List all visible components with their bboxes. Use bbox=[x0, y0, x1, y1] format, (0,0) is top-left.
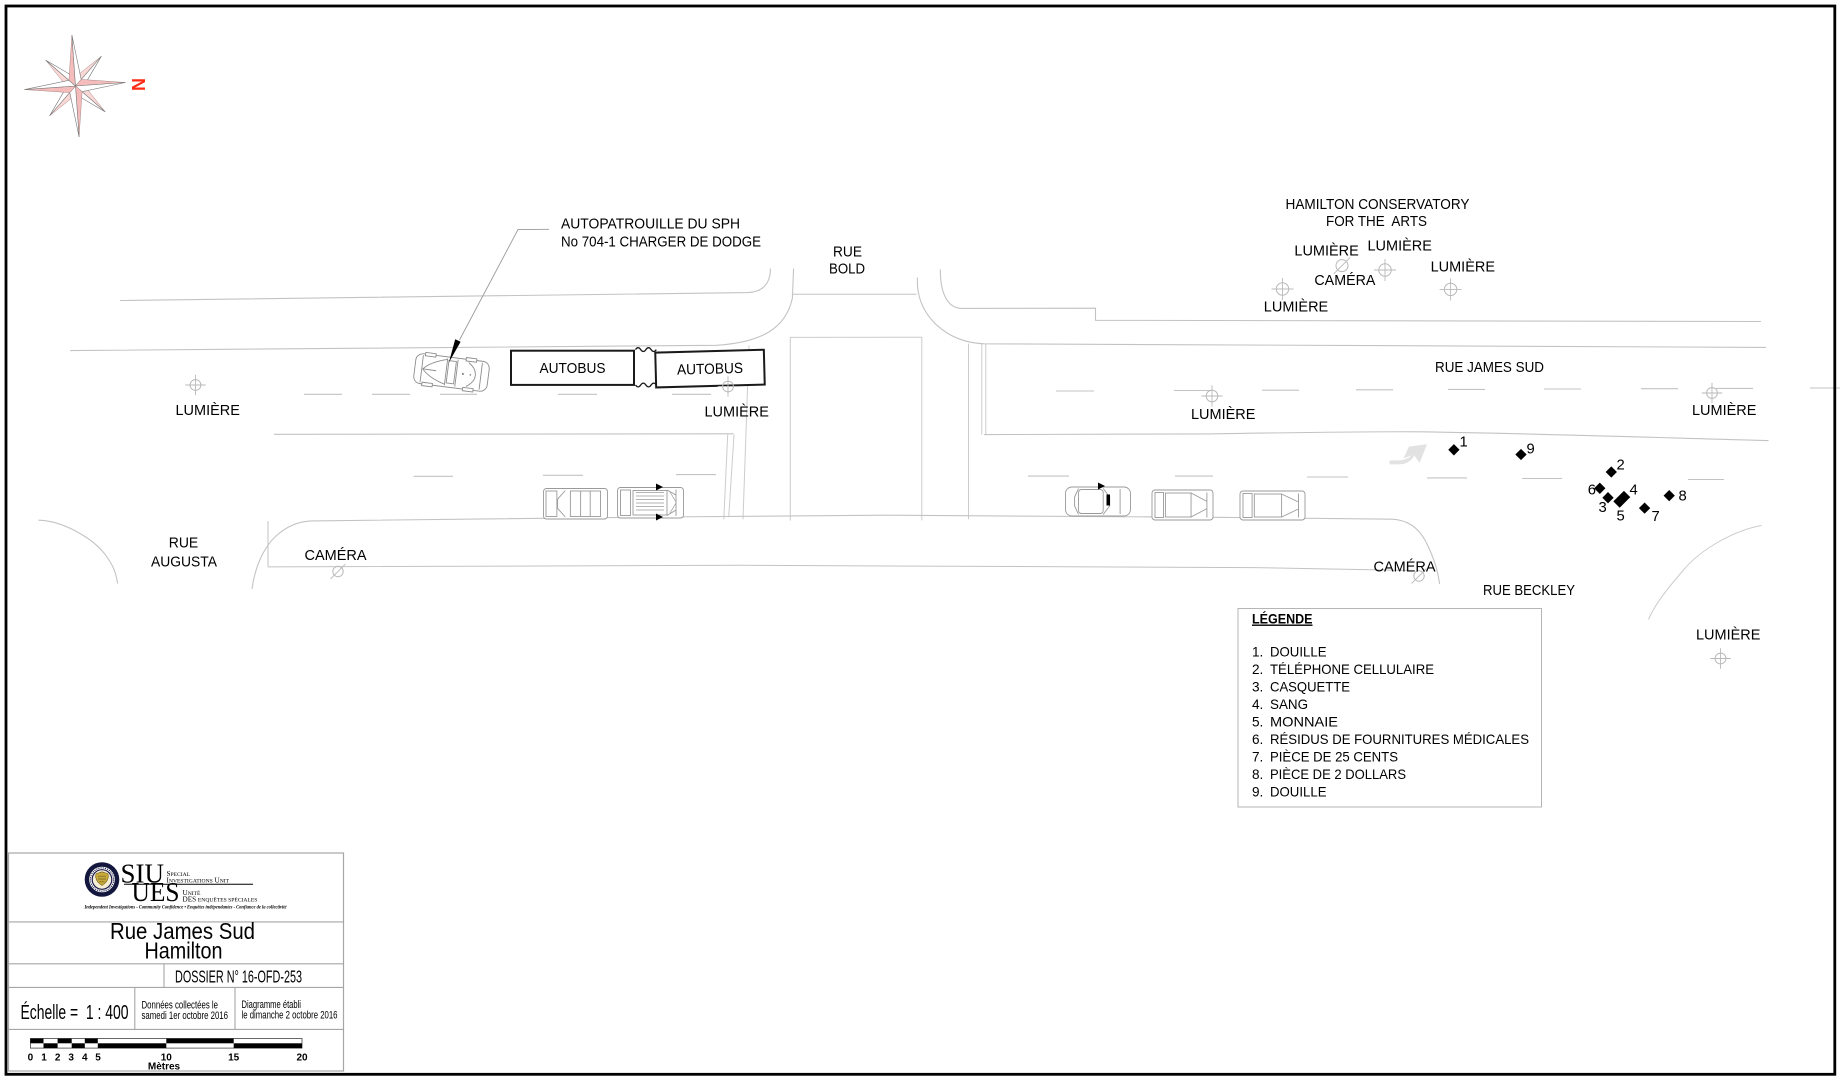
svg-text:FOR THE ARTS: FOR THE ARTS bbox=[1326, 214, 1427, 230]
svg-text:1: 1 bbox=[41, 1053, 47, 1064]
svg-text:LUMIÈRE: LUMIÈRE bbox=[1696, 627, 1761, 644]
svg-text:DOUILLE: DOUILLE bbox=[1270, 785, 1327, 800]
svg-text:LUMIÈRE: LUMIÈRE bbox=[176, 402, 241, 419]
svg-text:LUMIÈRE: LUMIÈRE bbox=[705, 404, 770, 421]
svg-text:AUTOPATROUILLE DU SPH: AUTOPATROUILLE DU SPH bbox=[561, 217, 740, 233]
svg-text:DES ENQUÊTES SPÉCIALES: DES ENQUÊTES SPÉCIALES bbox=[183, 895, 258, 903]
svg-text:Échelle = 1 : 400: Échelle = 1 : 400 bbox=[21, 1001, 129, 1024]
svg-text:SANG: SANG bbox=[1270, 697, 1308, 712]
svg-text:LUMIÈRE: LUMIÈRE bbox=[1264, 298, 1329, 315]
svg-text:PIÈCE DE 2 DOLLARS: PIÈCE DE 2 DOLLARS bbox=[1270, 767, 1406, 782]
svg-text:HAMILTON CONSERVATORY: HAMILTON CONSERVATORY bbox=[1286, 197, 1470, 213]
svg-text:8.: 8. bbox=[1252, 767, 1263, 782]
svg-text:2: 2 bbox=[55, 1053, 61, 1064]
svg-text:7.: 7. bbox=[1252, 750, 1263, 765]
svg-text:DOSSIER N° 16-OFD-253: DOSSIER N° 16-OFD-253 bbox=[175, 967, 302, 987]
svg-text:9.: 9. bbox=[1252, 785, 1263, 800]
svg-text:AUTOBUS: AUTOBUS bbox=[677, 361, 744, 379]
svg-text:4: 4 bbox=[1630, 483, 1638, 499]
svg-text:DOUILLE: DOUILLE bbox=[1270, 645, 1327, 660]
svg-text:0: 0 bbox=[28, 1053, 34, 1064]
svg-text:PIÈCE DE 25 CENTS: PIÈCE DE 25 CENTS bbox=[1270, 750, 1398, 765]
svg-text:LUMIÈRE: LUMIÈRE bbox=[1191, 406, 1256, 423]
svg-text:LUMIÈRE: LUMIÈRE bbox=[1368, 238, 1433, 255]
svg-text:LÉGENDE: LÉGENDE bbox=[1252, 611, 1313, 627]
svg-text:5: 5 bbox=[1617, 509, 1625, 525]
svg-text:4.: 4. bbox=[1252, 697, 1263, 712]
svg-text:RÉSIDUS DE FOURNITURES MÉDICAL: RÉSIDUS DE FOURNITURES MÉDICALES bbox=[1270, 732, 1529, 747]
svg-text:AUTOBUS: AUTOBUS bbox=[540, 361, 606, 377]
svg-text:LUMIÈRE: LUMIÈRE bbox=[1692, 402, 1757, 419]
svg-text:LUMIÈRE: LUMIÈRE bbox=[1294, 243, 1359, 260]
svg-text:le dimanche 2 octobre 2016: le dimanche 2 octobre 2016 bbox=[242, 1010, 338, 1022]
svg-text:6.: 6. bbox=[1252, 732, 1263, 747]
svg-text:Mètres: Mètres bbox=[148, 1062, 181, 1073]
svg-text:3.: 3. bbox=[1252, 680, 1263, 695]
svg-text:RUE JAMES SUD: RUE JAMES SUD bbox=[1435, 360, 1544, 376]
svg-text:N: N bbox=[128, 78, 148, 91]
svg-text:BOLD: BOLD bbox=[829, 262, 865, 278]
svg-text:LUMIÈRE: LUMIÈRE bbox=[1431, 258, 1496, 275]
svg-text:5: 5 bbox=[95, 1053, 101, 1064]
svg-text:CASQUETTE: CASQUETTE bbox=[1270, 680, 1350, 695]
svg-text:15: 15 bbox=[228, 1053, 240, 1064]
svg-text:AUGUSTA: AUGUSTA bbox=[151, 555, 217, 571]
svg-text:4: 4 bbox=[82, 1053, 88, 1064]
svg-text:INVESTIGATIONS UNIT: INVESTIGATIONS UNIT bbox=[167, 877, 230, 885]
svg-text:2: 2 bbox=[1617, 458, 1625, 474]
svg-text:3: 3 bbox=[1599, 500, 1607, 516]
svg-text:SPECIAL: SPECIAL bbox=[167, 870, 191, 878]
svg-text:1: 1 bbox=[1460, 435, 1468, 451]
svg-text:RUE: RUE bbox=[833, 245, 862, 261]
svg-text:samedi 1er octobre 2016: samedi 1er octobre 2016 bbox=[142, 1010, 229, 1022]
svg-text:6: 6 bbox=[1588, 483, 1596, 499]
svg-text:3: 3 bbox=[68, 1053, 74, 1064]
svg-text:RUE BECKLEY: RUE BECKLEY bbox=[1483, 583, 1575, 599]
svg-text:CAMÉRA: CAMÉRA bbox=[1314, 272, 1375, 289]
svg-text:1.: 1. bbox=[1252, 645, 1263, 660]
svg-text:9: 9 bbox=[1527, 442, 1535, 458]
svg-text:7: 7 bbox=[1652, 509, 1660, 525]
svg-text:5.: 5. bbox=[1252, 715, 1263, 730]
svg-text:Hamilton: Hamilton bbox=[145, 938, 223, 964]
svg-text:MONNAIE: MONNAIE bbox=[1270, 715, 1338, 730]
svg-text:CAMÉRA: CAMÉRA bbox=[305, 547, 367, 564]
svg-text:CAMÉRA: CAMÉRA bbox=[1374, 559, 1436, 576]
svg-text:RUE: RUE bbox=[169, 536, 199, 552]
svg-text:Independent Investigations - C: Independent Investigations - Community C… bbox=[84, 904, 287, 910]
svg-text:TÉLÉPHONE CELLULAIRE: TÉLÉPHONE CELLULAIRE bbox=[1270, 662, 1434, 677]
svg-text:8: 8 bbox=[1679, 489, 1687, 505]
svg-text:No 704-1 CHARGER DE DODGE: No 704-1 CHARGER DE DODGE bbox=[561, 234, 761, 250]
svg-text:2.: 2. bbox=[1252, 662, 1263, 677]
svg-text:20: 20 bbox=[296, 1053, 308, 1064]
